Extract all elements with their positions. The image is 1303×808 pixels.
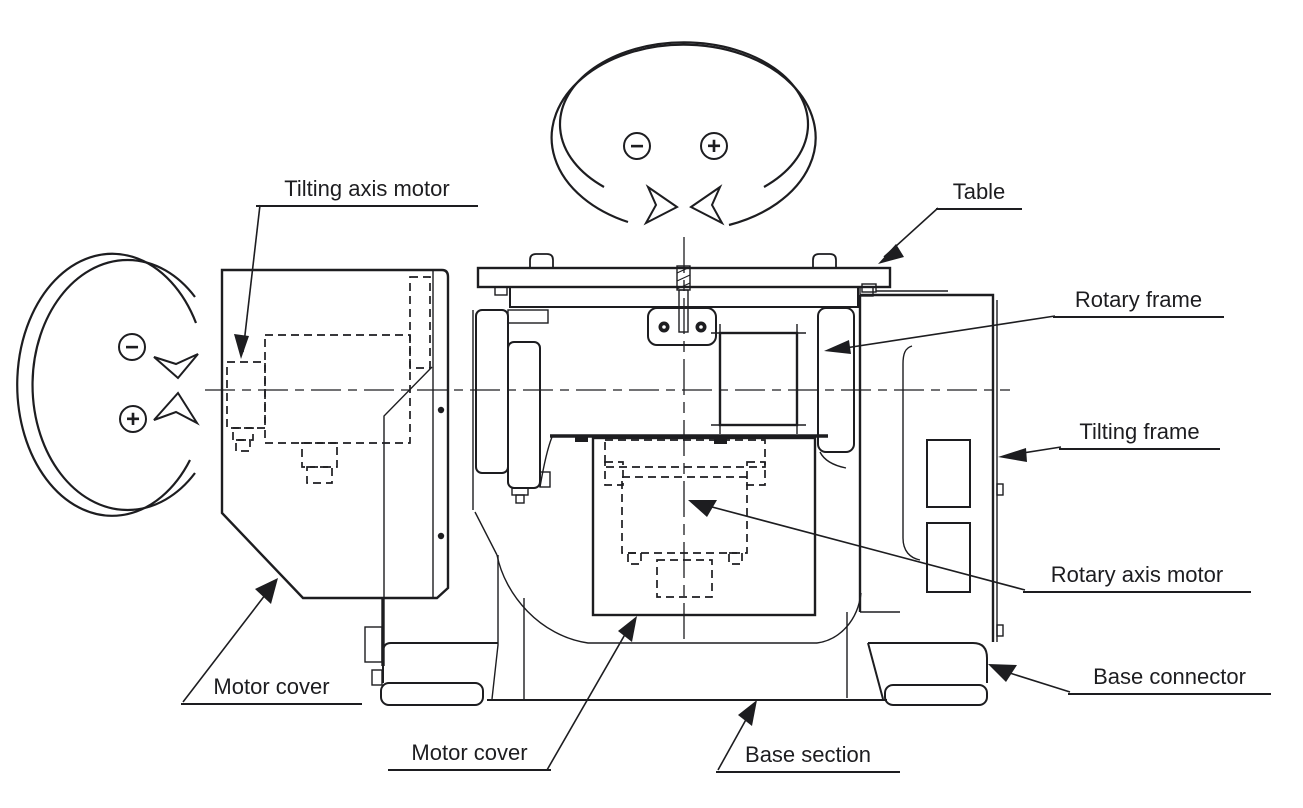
base-section-drawing (365, 512, 987, 705)
arrowhead-icon (988, 664, 1017, 682)
connector-panel (927, 440, 970, 507)
inspection-window (720, 333, 797, 425)
tilting-axis-rotation-arrow (17, 254, 198, 516)
rotary-axis-motor-hidden-outline (605, 440, 765, 597)
arrowhead-icon (738, 700, 757, 726)
label-tilting-axis-motor: Tilting axis motor (256, 176, 478, 207)
ribbon-inner-arc (560, 42, 808, 187)
diagram-page: − + − + (0, 0, 1303, 808)
ribbon-outer-arc (17, 254, 196, 516)
leader-rotary-frame (832, 316, 1055, 350)
label-base-connector: Base connector (1068, 664, 1271, 695)
trunnion-bearing-drawing (473, 310, 552, 510)
leader-motor-cover-bottom (547, 624, 631, 770)
rotary-axis-rotation-arrow (552, 42, 816, 225)
arrowhead-icon (998, 448, 1027, 462)
label-motor-cover-left: Motor cover (181, 674, 362, 705)
ribbon-inner-arc (33, 260, 195, 510)
arrowhead-right-icon (646, 187, 677, 223)
label-base-section: Base section (716, 742, 900, 773)
table-key-icon (530, 254, 553, 268)
arrowhead-left-icon (691, 187, 722, 223)
label-rotary-axis-motor: Rotary axis motor (1023, 562, 1251, 593)
arrowhead-icon (688, 500, 717, 517)
grease-nipple-icon (512, 488, 528, 495)
tilting-minus-symbol: − (125, 334, 139, 361)
arrowhead-icon (255, 578, 278, 604)
tilting-plus-symbol: + (126, 406, 140, 433)
label-rotary-frame: Rotary frame (1053, 287, 1224, 318)
arrowhead-down-icon (154, 354, 198, 378)
base-foot-pad (381, 683, 483, 705)
centerlines (205, 237, 1010, 645)
motor-cover-left-drawing (222, 270, 448, 598)
arrowhead-icon (618, 616, 637, 642)
screw-icon (438, 407, 444, 413)
tilting-axis-motor-hidden-outline (227, 277, 430, 483)
label-tilting-frame: Tilting frame (1059, 419, 1220, 450)
table-key-icon (813, 254, 836, 268)
arrowhead-icon (824, 340, 851, 354)
leader-tilting-axis-motor (243, 205, 260, 352)
label-motor-cover-bottom: Motor cover (388, 740, 551, 771)
ribbon-outer-arc (552, 45, 816, 225)
screw-icon (438, 533, 444, 539)
rotary-minus-symbol: − (630, 133, 644, 160)
tilting-frame-drawing (860, 284, 1003, 642)
rotary-motor-cover-drawing (593, 438, 815, 615)
arrowhead-icon (234, 334, 249, 359)
arrowhead-icon (878, 244, 904, 264)
rotary-plus-symbol: + (707, 133, 721, 160)
base-foot-pad (885, 685, 987, 705)
label-table: Table (936, 179, 1022, 210)
arrowhead-up-icon (154, 393, 197, 423)
connector-panel (927, 523, 970, 592)
